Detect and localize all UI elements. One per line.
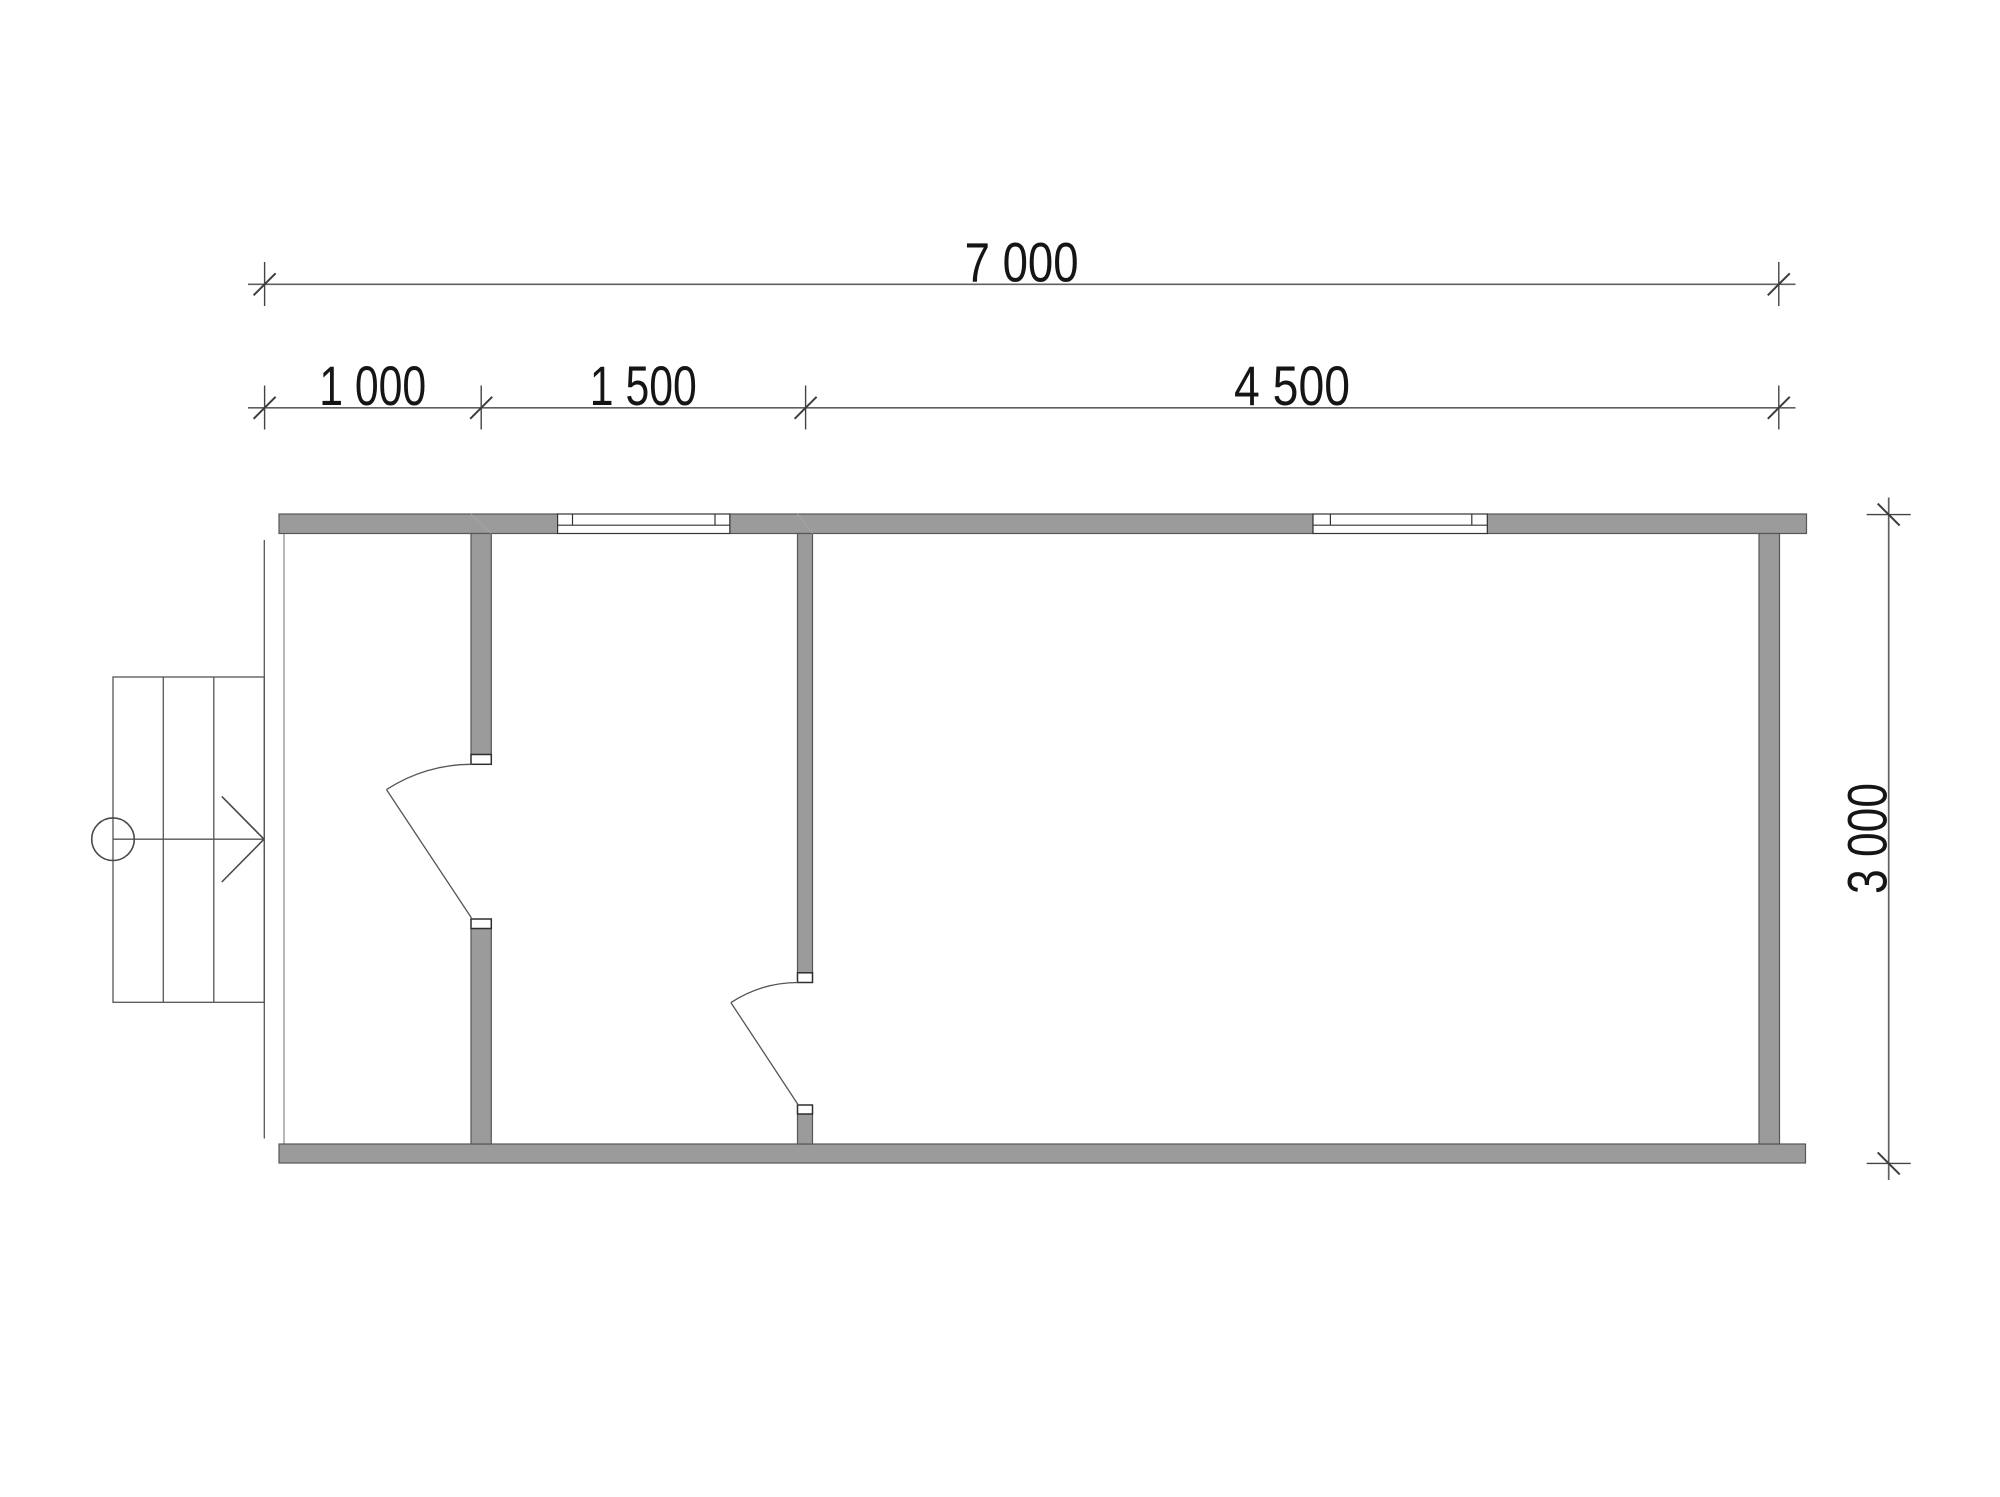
svg-text:1 500: 1 500 <box>590 354 697 417</box>
svg-text:1 000: 1 000 <box>319 354 426 417</box>
svg-text:4 500: 4 500 <box>1234 354 1350 417</box>
svg-text:3 000: 3 000 <box>1835 783 1898 894</box>
svg-text:7 000: 7 000 <box>965 231 1079 294</box>
